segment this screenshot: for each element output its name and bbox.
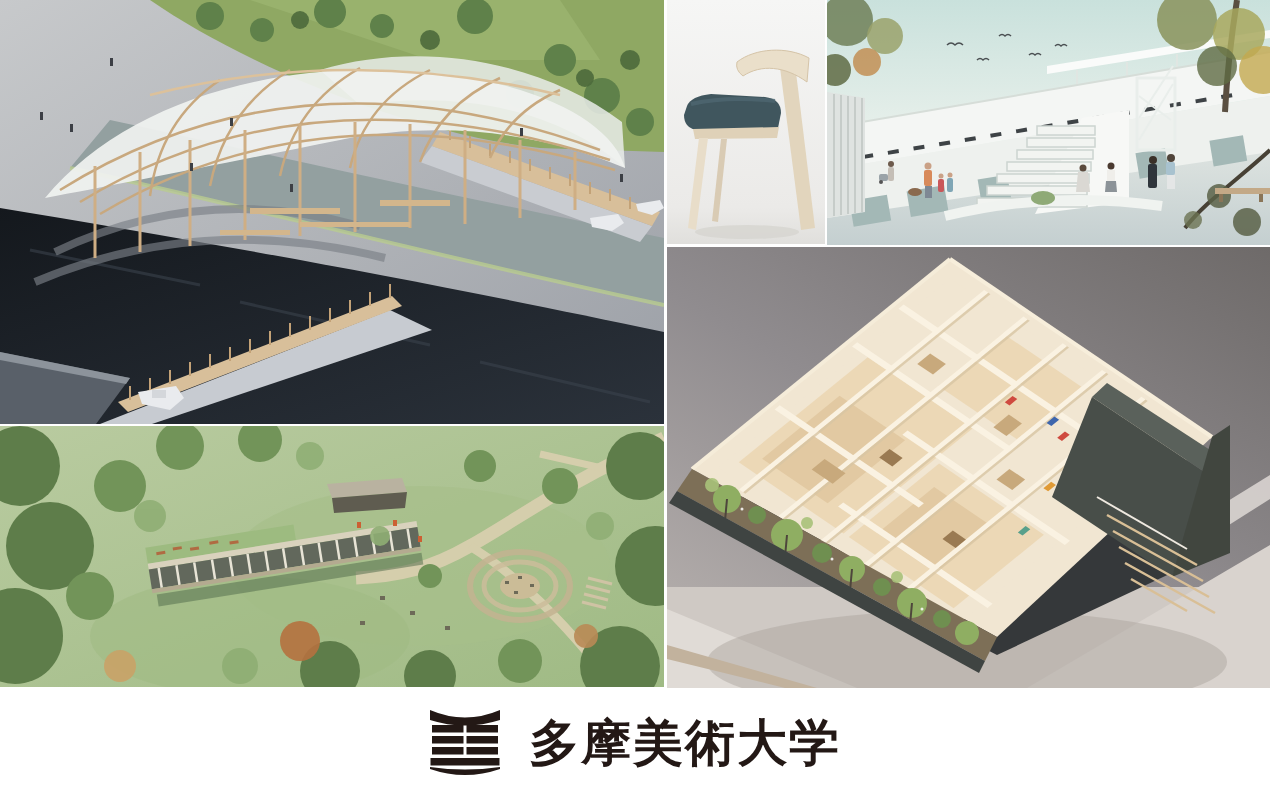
chair-illustration — [667, 0, 825, 244]
image-wooden-chair — [667, 0, 825, 244]
chair-shadow — [695, 225, 799, 239]
small-building — [327, 478, 407, 513]
bush — [1031, 191, 1055, 205]
logo-footer: 多摩美術大学 — [0, 688, 1270, 798]
image-wooden-pavilion-model — [0, 0, 664, 424]
tama-art-university-logo-mark — [429, 709, 501, 777]
image-collage — [0, 0, 1270, 798]
image-elevated-building-rendering — [827, 0, 1270, 245]
pavilion-model-illustration — [0, 0, 664, 424]
plaza-rendering-illustration — [827, 0, 1270, 245]
park-illustration — [0, 426, 664, 687]
container — [827, 92, 865, 218]
image-park-aerial-rendering — [0, 426, 664, 687]
chair-seat-frame — [693, 127, 779, 139]
house-model-illustration — [667, 247, 1270, 688]
university-name: 多摩美術大学 — [529, 718, 841, 768]
image-house-interior-model — [667, 247, 1270, 688]
